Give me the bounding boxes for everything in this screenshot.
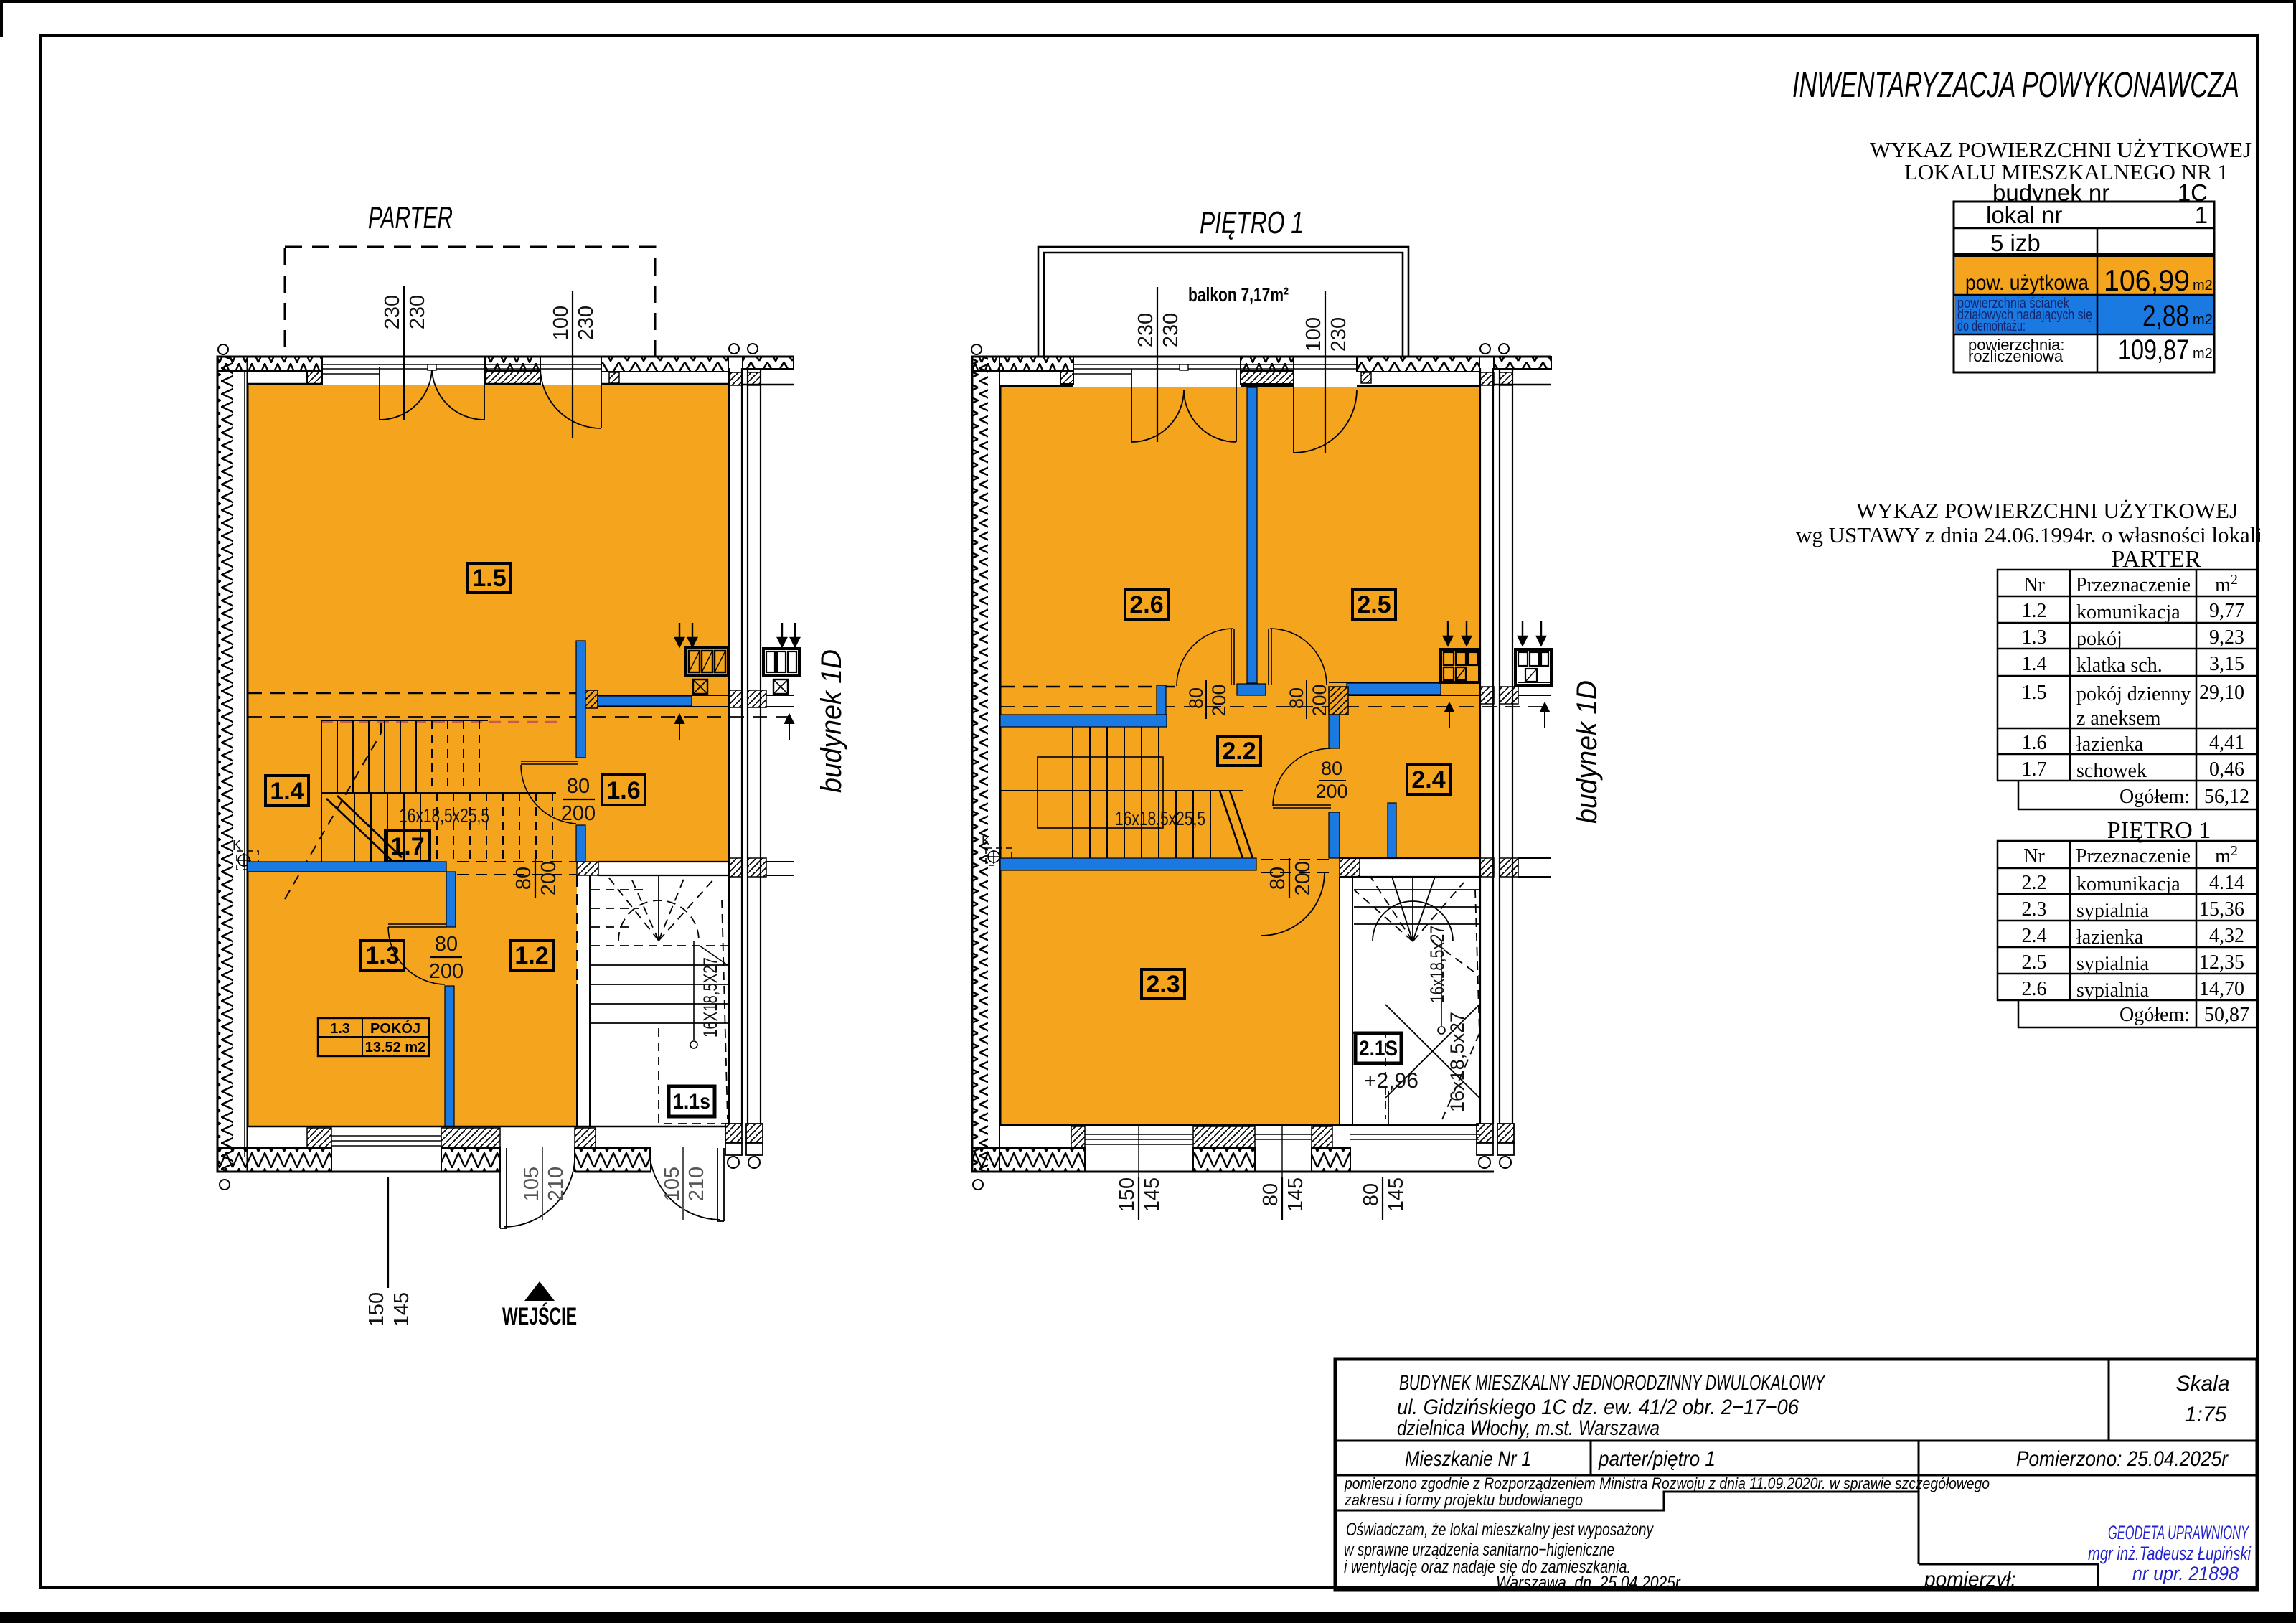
- svg-text:9,23: 9,23: [2209, 626, 2244, 649]
- svg-text:230: 230: [381, 295, 404, 329]
- svg-text:1.7: 1.7: [390, 833, 424, 860]
- svg-text:pomierzył:: pomierzył:: [1924, 1568, 2016, 1591]
- svg-text:komunikacja: komunikacja: [2076, 601, 2180, 624]
- svg-text:2.4: 2.4: [2022, 925, 2047, 947]
- svg-text:1.3: 1.3: [330, 1021, 350, 1037]
- svg-text:80: 80: [1286, 687, 1307, 709]
- svg-text:100: 100: [550, 306, 573, 340]
- svg-text:GEODETA UPRAWNIONY: GEODETA UPRAWNIONY: [2108, 1522, 2249, 1543]
- svg-text:rozliczeniowa: rozliczeniowa: [1968, 347, 2064, 365]
- svg-text:2,88: 2,88: [2142, 298, 2189, 332]
- svg-text:sypialnia: sypialnia: [2076, 953, 2150, 975]
- svg-text:1.2: 1.2: [514, 942, 548, 969]
- svg-text:m2: m2: [2193, 278, 2213, 293]
- svg-text:PARTER: PARTER: [2111, 546, 2201, 573]
- svg-text:pokój: pokój: [2076, 628, 2122, 650]
- svg-text:200: 200: [537, 861, 560, 895]
- svg-text:145: 145: [1284, 1177, 1307, 1212]
- svg-text:4,32: 4,32: [2209, 925, 2244, 947]
- svg-text:Przeznaczenie: Przeznaczenie: [2076, 845, 2191, 867]
- svg-text:16x18,5x25,5: 16x18,5x25,5: [399, 804, 489, 827]
- svg-text:1.1s: 1.1s: [673, 1090, 710, 1114]
- svg-text:80: 80: [1185, 687, 1207, 709]
- svg-text:parter/piętro 1: parter/piętro 1: [1598, 1447, 1716, 1471]
- svg-text:16X18,5X27: 16X18,5X27: [700, 957, 721, 1038]
- svg-text:15,36: 15,36: [2199, 898, 2244, 921]
- svg-text:pow. użytkowa: pow. użytkowa: [1965, 271, 2089, 295]
- svg-text:1.6: 1.6: [606, 777, 640, 804]
- svg-text:50,87: 50,87: [2204, 1004, 2249, 1026]
- svg-text:Skala: Skala: [2175, 1372, 2229, 1396]
- svg-text:do demontażu:: do demontażu:: [1957, 319, 2026, 334]
- svg-text:wg USTAWY z dnia 24.06.1994r.: wg USTAWY z dnia 24.06.1994r. o własnośc…: [1796, 522, 2262, 547]
- svg-text:16x18,5x25,5: 16x18,5x25,5: [1115, 807, 1205, 829]
- svg-text:lokal nr: lokal nr: [1986, 202, 2062, 228]
- svg-text:145: 145: [1141, 1177, 1164, 1212]
- svg-text:budynek 1D: budynek 1D: [1571, 680, 1603, 824]
- svg-text:zakresu i formy projektu b: zakresu i formy projektu budowlanego: [1344, 1491, 1583, 1509]
- svg-text:100: 100: [1302, 317, 1325, 352]
- svg-text:2.6: 2.6: [1129, 591, 1163, 618]
- svg-text:budynek 1D: budynek 1D: [816, 649, 847, 793]
- svg-text:2.3: 2.3: [1146, 971, 1180, 998]
- svg-text:pokój dzienny: pokój dzienny: [2076, 683, 2191, 705]
- svg-text:2.2: 2.2: [1222, 738, 1256, 765]
- svg-text:1.7: 1.7: [2022, 758, 2047, 781]
- svg-text:3,15: 3,15: [2209, 653, 2244, 675]
- svg-text:230: 230: [1327, 317, 1350, 352]
- svg-text:K: K: [232, 838, 241, 852]
- svg-text:sypialnia: sypialnia: [2076, 900, 2150, 922]
- svg-text:BUDYNEK MIESZKALNY JEDNORODZ: BUDYNEK MIESZKALNY JEDNORODZINNY DWULOKA…: [1399, 1371, 1825, 1395]
- svg-text:m2: m2: [2193, 346, 2213, 362]
- svg-text:4.14: 4.14: [2209, 872, 2244, 894]
- svg-text:klatka sch.: klatka sch.: [2076, 654, 2163, 677]
- svg-text:WYKAZ POWIERZCHNI UŻYTKOWEJ: WYKAZ POWIERZCHNI UŻYTKOWEJ: [1870, 137, 2252, 162]
- svg-text:PIĘTRO 1: PIĘTRO 1: [2107, 817, 2211, 844]
- svg-text:56,12: 56,12: [2204, 786, 2249, 808]
- svg-text:komunikacja: komunikacja: [2076, 873, 2180, 895]
- svg-text:0,46: 0,46: [2209, 758, 2244, 781]
- svg-text:sypialnia: sypialnia: [2076, 979, 2150, 1002]
- svg-text:230: 230: [1134, 313, 1157, 347]
- svg-text:WYKAZ POWIERZCHNI UŻYTKOWEJ: WYKAZ POWIERZCHNI UŻYTKOWEJ: [1856, 498, 2238, 523]
- svg-text:105: 105: [520, 1167, 543, 1201]
- svg-text:nr upr. 21898: nr upr. 21898: [2132, 1563, 2239, 1584]
- svg-text:POKÓJ: POKÓJ: [370, 1020, 420, 1037]
- svg-text:80: 80: [1266, 867, 1289, 890]
- svg-text:K: K: [982, 834, 990, 848]
- svg-text:14,70: 14,70: [2199, 978, 2244, 1000]
- svg-text:230: 230: [1159, 313, 1182, 347]
- svg-text:1.4: 1.4: [2022, 653, 2047, 675]
- svg-text:pomierzono zgodnie z Rozpor: pomierzono zgodnie z Rozporządzeniem Min…: [1344, 1474, 1990, 1492]
- svg-text:16x18,5x27: 16x18,5x27: [1446, 1012, 1468, 1112]
- svg-text:m2: m2: [2193, 312, 2213, 328]
- svg-text:200: 200: [1309, 684, 1330, 716]
- svg-text:2.5: 2.5: [2022, 951, 2047, 974]
- svg-text:Przeznaczenie: Przeznaczenie: [2076, 574, 2191, 596]
- svg-text:2.4: 2.4: [1411, 766, 1445, 794]
- svg-text:1.2: 1.2: [2022, 600, 2047, 622]
- svg-text:PIĘTRO 1: PIĘTRO 1: [1200, 205, 1304, 240]
- svg-text:9,77: 9,77: [2209, 600, 2244, 622]
- svg-text:Pomierzono: 25.04.2025r: Pomierzono: 25.04.2025r: [2016, 1447, 2229, 1471]
- svg-text:+2,96: +2,96: [1364, 1069, 1418, 1093]
- svg-text:Nr: Nr: [2023, 845, 2045, 867]
- svg-text:2.2: 2.2: [2022, 872, 2047, 894]
- svg-text:Ogółem:: Ogółem:: [2119, 1004, 2190, 1026]
- svg-text:150: 150: [365, 1292, 388, 1327]
- svg-text:Oświadczam, że lokal mieszk: Oświadczam, że lokal mieszkalny jest wyp…: [1346, 1520, 1654, 1540]
- svg-text:1.3: 1.3: [2022, 626, 2047, 649]
- svg-text:230: 230: [575, 306, 598, 340]
- svg-text:200: 200: [1208, 684, 1230, 716]
- svg-text:1.5: 1.5: [2022, 682, 2047, 704]
- svg-text:105: 105: [661, 1167, 684, 1201]
- svg-text:109,87: 109,87: [2118, 334, 2189, 366]
- svg-text:balkon 7,17m²: balkon 7,17m²: [1188, 283, 1289, 306]
- svg-text:80: 80: [567, 775, 590, 798]
- svg-text:200: 200: [1291, 861, 1314, 895]
- svg-text:łazienka: łazienka: [2076, 733, 2144, 756]
- svg-text:80: 80: [1360, 1183, 1383, 1206]
- svg-text:2.6: 2.6: [2022, 978, 2047, 1000]
- svg-text:200: 200: [561, 802, 596, 825]
- svg-text:2.5: 2.5: [1357, 591, 1391, 618]
- svg-text:1.3: 1.3: [365, 942, 399, 969]
- svg-text:2.1S: 2.1S: [1359, 1037, 1398, 1060]
- svg-text:INWENTARYZACJA POWYKONAWCZA: INWENTARYZACJA POWYKONAWCZA: [1792, 65, 2239, 105]
- svg-text:80: 80: [512, 867, 535, 890]
- svg-text:Warszawa, dn. 25.04.2025: Warszawa, dn. 25.04.2025r.: [1496, 1573, 1684, 1593]
- svg-text:200: 200: [1315, 781, 1347, 802]
- svg-text:210: 210: [685, 1167, 708, 1201]
- svg-text:1: 1: [2195, 202, 2208, 228]
- svg-text:Nr: Nr: [2023, 574, 2045, 596]
- svg-text:16x18,5x27: 16x18,5x27: [1426, 926, 1448, 1003]
- svg-text:Ogółem:: Ogółem:: [2119, 786, 2190, 808]
- svg-text:145: 145: [1385, 1177, 1408, 1212]
- svg-text:150: 150: [1116, 1177, 1139, 1212]
- svg-text:PARTER: PARTER: [368, 200, 453, 235]
- svg-text:13.52 m2: 13.52 m2: [365, 1040, 426, 1055]
- svg-text:WEJŚCIE: WEJŚCIE: [502, 1303, 577, 1330]
- svg-text:1.5: 1.5: [472, 565, 506, 592]
- svg-text:80: 80: [1259, 1183, 1282, 1206]
- svg-text:dzielnica Włochy, m.st. War: dzielnica Włochy, m.st. Warszawa: [1397, 1416, 1660, 1440]
- svg-text:Mieszkanie Nr 1: Mieszkanie Nr 1: [1405, 1447, 1531, 1471]
- svg-text:210: 210: [545, 1167, 568, 1201]
- svg-text:1.4: 1.4: [270, 778, 304, 805]
- svg-text:2.3: 2.3: [2022, 898, 2047, 921]
- svg-text:5 izb: 5 izb: [1990, 230, 2041, 256]
- svg-text:12,35: 12,35: [2199, 951, 2244, 974]
- svg-text:106,99: 106,99: [2104, 263, 2190, 297]
- svg-text:4,41: 4,41: [2209, 732, 2244, 754]
- svg-text:1:75: 1:75: [2185, 1403, 2227, 1426]
- svg-text:200: 200: [429, 960, 464, 983]
- svg-text:29,10: 29,10: [2199, 682, 2244, 704]
- svg-text:mgr inż.Tadeusz Łupiński: mgr inż.Tadeusz Łupiński: [2088, 1543, 2252, 1564]
- svg-text:łazienka: łazienka: [2076, 926, 2144, 949]
- svg-text:230: 230: [406, 295, 429, 329]
- svg-text:z aneksem: z aneksem: [2076, 707, 2161, 730]
- svg-text:1.6: 1.6: [2022, 732, 2047, 754]
- svg-text:80: 80: [435, 933, 458, 956]
- svg-text:80: 80: [1321, 758, 1342, 779]
- svg-text:schowek: schowek: [2076, 760, 2147, 782]
- svg-text:145: 145: [390, 1292, 413, 1327]
